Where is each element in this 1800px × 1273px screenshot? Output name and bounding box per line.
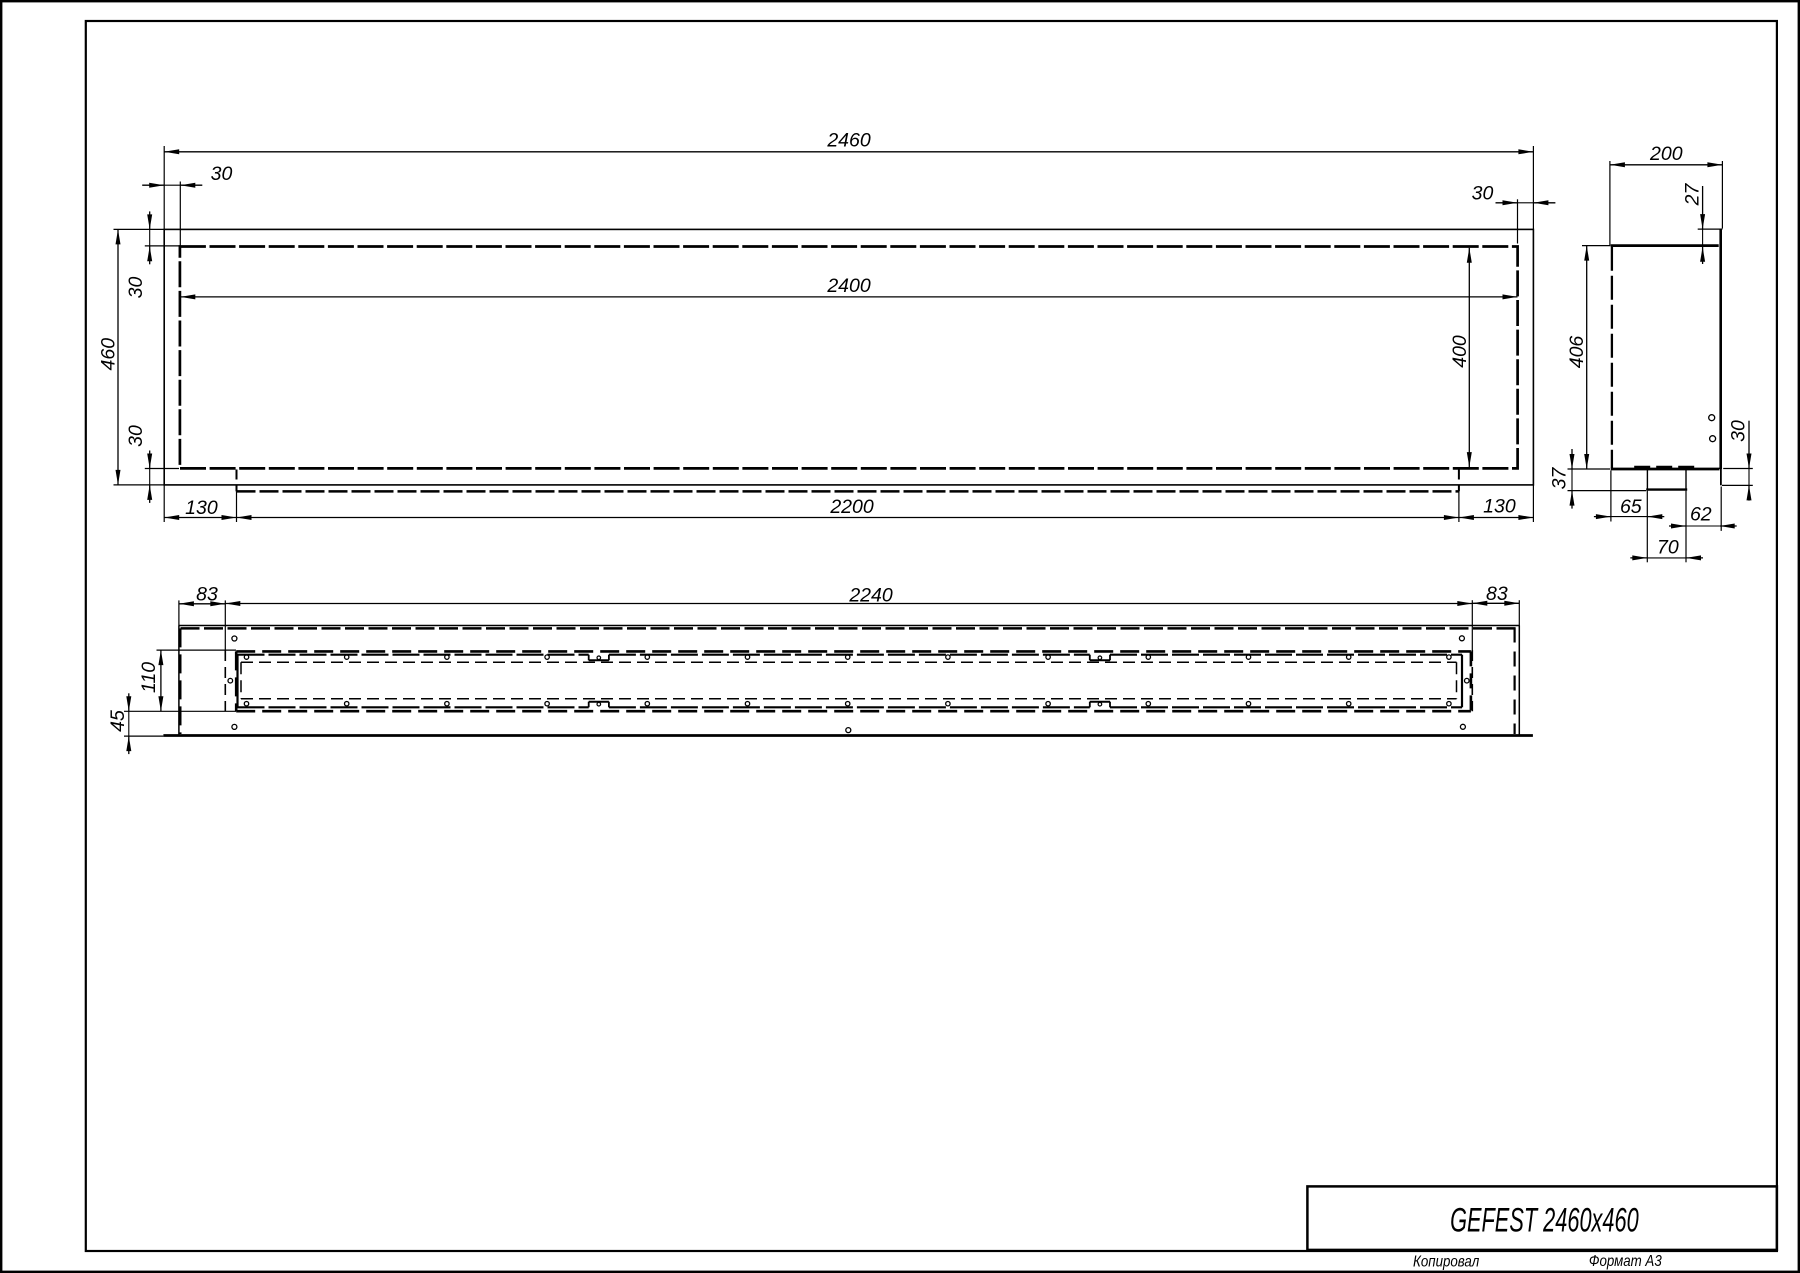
svg-text:27: 27	[1682, 183, 1704, 207]
svg-text:30: 30	[1472, 182, 1494, 204]
svg-text:70: 70	[1657, 536, 1679, 558]
svg-text:37: 37	[1548, 467, 1570, 490]
svg-text:GEFEST 2460x460: GEFEST 2460x460	[1450, 1202, 1639, 1240]
svg-text:130: 130	[1483, 495, 1516, 517]
svg-text:30: 30	[211, 163, 233, 185]
svg-text:83: 83	[1486, 583, 1508, 605]
svg-text:2200: 2200	[829, 496, 874, 518]
svg-text:460: 460	[98, 338, 120, 371]
svg-text:Копировал: Копировал	[1413, 1254, 1479, 1271]
svg-text:30: 30	[1727, 420, 1749, 442]
svg-text:200: 200	[1649, 143, 1683, 165]
svg-text:65: 65	[1620, 496, 1642, 518]
svg-text:2240: 2240	[848, 584, 893, 606]
svg-text:30: 30	[125, 425, 147, 447]
svg-text:406: 406	[1566, 336, 1588, 369]
svg-text:Формат А3: Формат А3	[1589, 1253, 1662, 1270]
svg-text:45: 45	[107, 710, 129, 732]
svg-text:400: 400	[1449, 335, 1471, 368]
svg-text:2400: 2400	[826, 275, 871, 297]
svg-text:110: 110	[138, 662, 160, 693]
svg-text:30: 30	[125, 277, 147, 299]
svg-text:130: 130	[185, 497, 218, 519]
svg-text:62: 62	[1690, 503, 1712, 525]
svg-text:2460: 2460	[826, 130, 871, 152]
svg-text:83: 83	[196, 584, 218, 606]
